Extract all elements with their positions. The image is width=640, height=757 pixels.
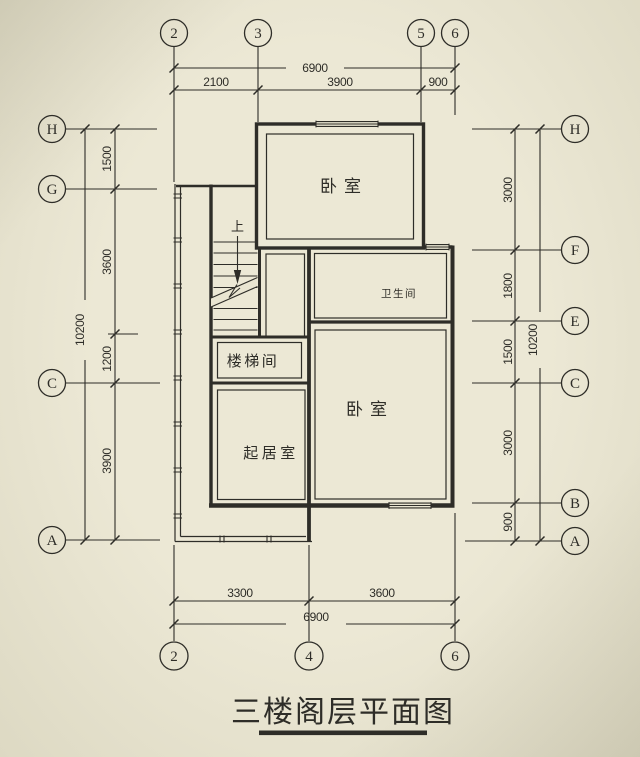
dim-top-seg-2: 3900	[327, 75, 353, 89]
dim-bottom-seg-1: 3300	[227, 586, 253, 600]
windows	[316, 121, 449, 509]
window-bathroom-top	[426, 244, 449, 251]
axis-label-left-G: G	[47, 182, 58, 198]
grid-bubble	[160, 642, 188, 670]
grid-bubble	[562, 116, 589, 143]
dim-right-seg-2: 1800	[501, 273, 515, 299]
axis-label-top-2: 2	[170, 26, 178, 42]
drawing-title: 三楼阁层平面图	[231, 695, 455, 730]
window-bedroom-top	[316, 121, 378, 128]
grid-bubble	[295, 642, 323, 670]
dim-right-seg-4: 3000	[501, 430, 515, 456]
dim-left-seg-2: 3600	[100, 249, 114, 275]
axis-label-right-A: A	[570, 534, 581, 550]
dim-left-seg-4: 3900	[100, 448, 114, 474]
outline-living-room	[218, 390, 306, 500]
outline-corridor	[266, 254, 305, 338]
room-label-bedroom-top: 卧室	[320, 177, 368, 197]
grid-bubble	[562, 308, 589, 335]
room-label-bathroom: 卫生间	[381, 287, 417, 300]
room-label-stairwell: 楼梯间	[227, 352, 280, 370]
grid-bubble	[245, 20, 272, 47]
dim-bottom-overall: 6900	[303, 610, 329, 624]
dim-right-overall: 10200	[526, 323, 540, 355]
axis-label-right-H: H	[570, 122, 581, 138]
window-bedroom-right-bottom	[389, 502, 431, 509]
grid-bubble	[39, 176, 66, 203]
building-walls	[176, 124, 455, 542]
grid-bubble	[442, 20, 469, 47]
wall-bedroom-top-inner	[267, 134, 414, 239]
dim-left-seg-1: 1500	[100, 146, 114, 172]
axis-label-top-5: 5	[417, 26, 425, 42]
grid-bubble	[562, 237, 589, 264]
grid-bubble	[562, 490, 589, 517]
axis-label-bottom-2: 2	[170, 649, 178, 665]
outline-bathroom	[315, 254, 447, 319]
axis-label-left-C: C	[47, 376, 57, 392]
grid-bubble	[441, 642, 469, 670]
axis-label-bottom-6: 6	[451, 649, 459, 665]
dim-top-seg-1: 2100	[203, 75, 229, 89]
axis-label-right-F: F	[571, 243, 579, 259]
grid-bubble	[39, 116, 66, 143]
dim-right-seg-3: 1500	[501, 339, 515, 365]
grid-bubble	[39, 527, 66, 554]
axis-label-left-H: H	[47, 122, 58, 138]
axis-label-bottom-4: 4	[305, 649, 313, 665]
wall-bedroom-top-outer	[257, 124, 424, 248]
axis-grid-right: H F E C B A 3000 1800 1500 3000 900 1020…	[465, 116, 589, 555]
axis-grid-left: H G C A 10200 1500 3600 1200 3900	[39, 116, 161, 554]
drawing-title-block: 三楼阁层平面图	[231, 695, 455, 735]
title-underline	[259, 731, 427, 736]
outline-bedroom-right	[315, 330, 446, 499]
axis-label-right-E: E	[570, 314, 579, 330]
dim-bottom-seg-2: 3600	[369, 586, 395, 600]
dim-right-seg-5: 900	[501, 512, 515, 532]
stairs-up-label: 上	[231, 220, 244, 235]
grid-bubble	[562, 528, 589, 555]
grid-bubble	[562, 370, 589, 397]
outline-stairwell-room	[218, 343, 302, 379]
terrace-bottom-glazing	[175, 537, 312, 542]
dim-top-overall: 6900	[302, 61, 328, 75]
floor-plan-drawing: 2 3 5 6 6900 2100 3900 900 H G C A 10200…	[0, 0, 640, 757]
grid-bubble	[408, 20, 435, 47]
axis-label-top-6: 6	[451, 26, 459, 42]
axis-label-left-A: A	[47, 533, 58, 549]
balcony-terrace	[174, 184, 313, 543]
room-label-living: 起居室	[243, 444, 299, 462]
dim-right-seg-1: 3000	[501, 177, 515, 203]
stairs: 上	[211, 220, 258, 330]
axis-label-right-C: C	[570, 376, 580, 392]
dim-top-seg-3: 900	[428, 75, 448, 89]
stair-up-arrow-head	[234, 270, 241, 284]
room-label-bedroom-right: 卧室	[346, 400, 394, 420]
dim-left-overall: 10200	[73, 313, 87, 345]
axis-label-top-3: 3	[254, 26, 262, 42]
axis-label-right-B: B	[570, 496, 580, 512]
dim-left-seg-3: 1200	[100, 346, 114, 372]
grid-bubble	[161, 20, 188, 47]
floor-plan-sheet: 2 3 5 6 6900 2100 3900 900 H G C A 10200…	[0, 0, 640, 757]
grid-bubble	[39, 370, 66, 397]
